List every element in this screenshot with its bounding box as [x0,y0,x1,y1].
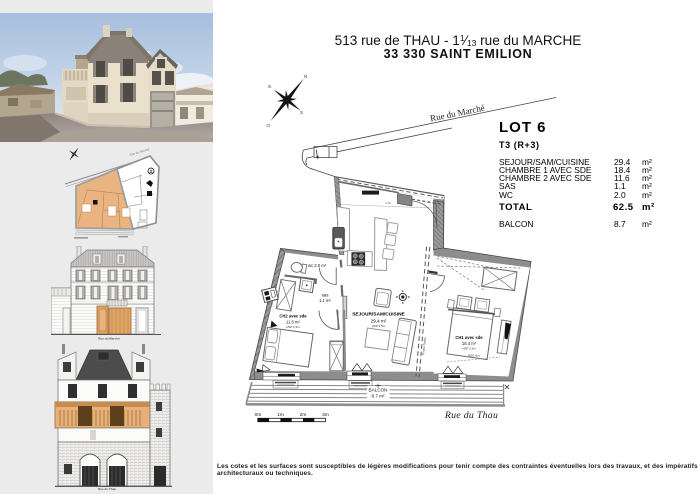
svg-text:29.4 m²: 29.4 m² [371,319,387,324]
svg-text:1.1 m²: 1.1 m² [319,298,331,303]
svg-text:11.6 m²: 11.6 m² [286,320,300,325]
svg-text:O: O [266,123,270,129]
svg-text:Rue du Thau: Rue du Thau [444,410,498,421]
svg-text:E: E [268,84,271,90]
svg-text:Rue du Marché: Rue du Marché [429,103,485,124]
svg-text:sas: sas [322,293,330,298]
svg-text:8.7 m²: 8.7 m² [371,394,384,399]
svg-text:CH1 avec sde: CH1 avec sde [455,335,483,340]
svg-text:HSU+1m: HSU+1m [468,354,481,358]
svg-text:HSP 2.5m: HSP 2.5m [286,325,300,329]
svg-text:SEJOUR/SAM/CUISINE: SEJOUR/SAM/CUISINE [352,312,405,318]
svg-text:S: S [300,110,303,116]
svg-text:N: N [304,74,308,80]
svg-text:3m: 3m [322,412,329,418]
svg-text:0m: 0m [255,412,262,418]
svg-text:HSP 2.5m: HSP 2.5m [372,324,386,328]
svg-text:18.4 m²: 18.4 m² [462,341,477,346]
svg-text:wc 2.0 m²: wc 2.0 m² [308,263,327,268]
svg-text:1m: 1m [277,412,284,418]
svg-text:2m: 2m [300,412,307,418]
svg-text:CH2 avec sde: CH2 avec sde [279,314,307,319]
svg-text:2.52: 2.52 [385,201,391,205]
svg-text:BALCON: BALCON [369,388,388,393]
svg-text:HSP 2.5m: HSP 2.5m [462,347,476,351]
